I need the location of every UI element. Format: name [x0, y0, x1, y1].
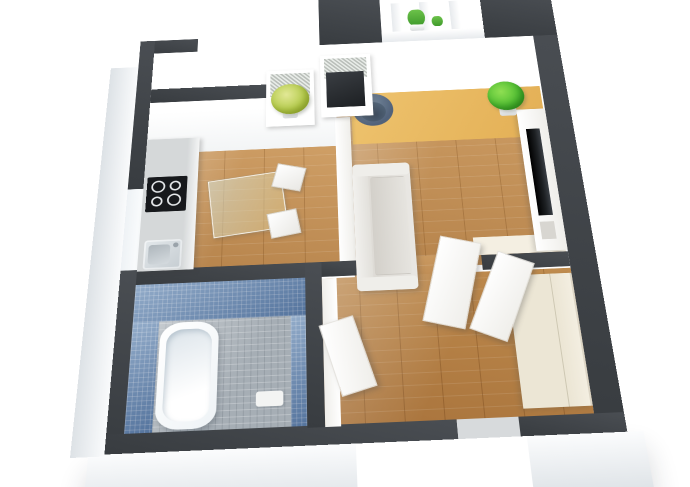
- burner: [169, 180, 181, 190]
- bathtub-basin: [161, 328, 212, 423]
- sofa: [352, 162, 419, 291]
- bathtub: [154, 321, 219, 431]
- tv-shelf: [540, 221, 557, 239]
- cactus-pot: [410, 24, 425, 31]
- dining-chair: [271, 163, 306, 191]
- bath-mat: [256, 390, 284, 406]
- sofa-seat-cushions: [370, 176, 412, 275]
- entrance-door: [457, 417, 521, 439]
- cactus-plant: [431, 16, 443, 26]
- wall-hallway-left-segment: [321, 260, 356, 276]
- built-in-appliance-unit: [320, 54, 374, 118]
- sink-basin: [147, 244, 170, 264]
- burner: [151, 196, 163, 206]
- appliance-dark-panel: [326, 71, 365, 108]
- tv-screen: [526, 128, 553, 215]
- sofa-armrest: [352, 162, 410, 176]
- burner: [151, 180, 166, 193]
- floorplan-stage: [0, 0, 690, 487]
- sofa-armrest: [357, 275, 419, 291]
- wall-top-block-left: [318, 0, 382, 45]
- burner: [167, 193, 182, 206]
- apartment-3d-plan: [104, 23, 627, 454]
- wall-top-block-right: [480, 0, 558, 38]
- bathroom-wall-tile-right: [291, 315, 308, 428]
- cooktop: [145, 176, 188, 213]
- faucet: [173, 242, 179, 247]
- bathroom-wall-tile-top: [133, 278, 306, 323]
- kitchen-sink: [142, 239, 182, 270]
- entrance-step: [356, 436, 534, 487]
